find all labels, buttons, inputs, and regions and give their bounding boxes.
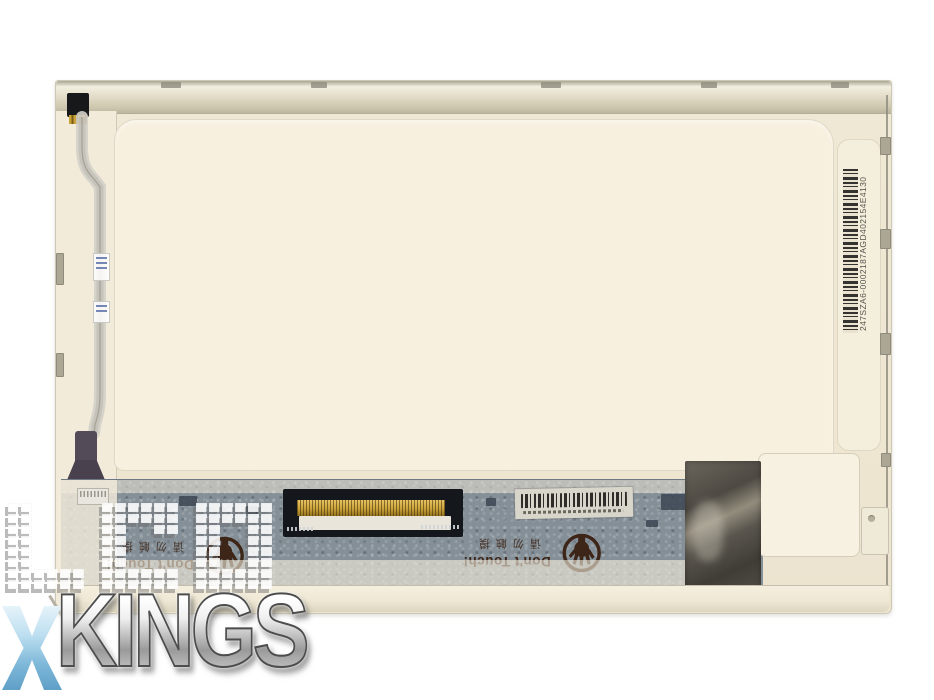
cable-connector-bottom [75, 431, 97, 463]
rail-notch [831, 82, 849, 88]
cable-label [93, 301, 110, 323]
connector-print [287, 527, 313, 531]
pcb-sticker-barcode [521, 492, 627, 508]
smd-component [646, 520, 658, 527]
mount-tab [880, 333, 891, 355]
smd-component [486, 498, 496, 506]
foil-tape [685, 461, 761, 601]
warning-chinese: 请勿触摸 [473, 537, 541, 553]
tape-reflection [693, 501, 723, 561]
mount-tab [880, 137, 891, 155]
connector-print [421, 525, 461, 529]
pcb-barcode-sticker [515, 487, 634, 519]
bottom-right-plate [758, 453, 860, 557]
lvds-gold-pins [297, 500, 445, 516]
watermark-kings: KINGS [2, 588, 360, 690]
back-recess-area [114, 119, 834, 471]
smd-component [661, 494, 687, 510]
watermark-kings-text: KINGS [56, 588, 306, 674]
screw-hole [868, 515, 875, 522]
mount-tab [881, 453, 891, 467]
rail-notch [311, 82, 327, 88]
panel-top-metal-rail [56, 81, 891, 114]
lvds-connector [283, 489, 463, 537]
ribbon-cable [56, 81, 176, 501]
rail-notch [541, 82, 561, 88]
kings-x-icon [2, 606, 62, 690]
mount-tab [880, 229, 891, 249]
pcb-sticker-microtext [523, 509, 623, 514]
screw-bracket [861, 507, 889, 555]
rail-notch [701, 82, 717, 88]
cable-label [93, 253, 110, 281]
product-photo: 247SZA6-0002187AGD402154E4130 [0, 0, 934, 700]
serial-number: 247SZA6-0002187AGD402154E4130 [856, 159, 870, 349]
